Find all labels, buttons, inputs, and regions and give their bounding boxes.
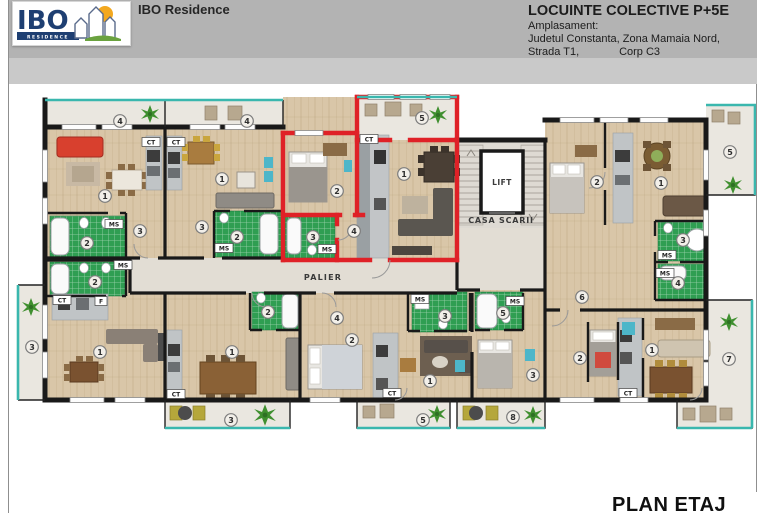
tv — [264, 157, 273, 168]
room-number-circle: 3 — [26, 341, 39, 354]
dining-table — [200, 355, 256, 401]
page: 445132132214321534623112423153217358CTCT… — [0, 0, 770, 513]
room-tag-ms: MS — [318, 245, 336, 254]
svg-text:F: F — [99, 298, 103, 305]
sideboard — [655, 318, 695, 330]
svg-text:2: 2 — [349, 336, 355, 345]
svg-text:CT: CT — [147, 139, 156, 146]
svg-text:2: 2 — [577, 354, 583, 363]
room-number-circle: 1 — [99, 190, 112, 203]
svg-text:1: 1 — [658, 179, 664, 188]
room-tag-ct: CT — [142, 138, 160, 147]
svg-text:CT: CT — [172, 391, 181, 398]
tv-console — [158, 333, 164, 361]
brand-text: IBO Residence — [138, 2, 230, 17]
svg-text:8: 8 — [510, 413, 516, 422]
sofa — [658, 340, 710, 357]
svg-text:1: 1 — [427, 377, 433, 386]
room-number-circle: 3 — [134, 225, 147, 238]
plan-text-label: LIFT — [492, 178, 512, 187]
room-number-circle: 3 — [527, 369, 540, 382]
header-subbar — [9, 58, 757, 84]
svg-text:3: 3 — [530, 371, 536, 380]
svg-text:MS: MS — [415, 296, 425, 303]
svg-text:4: 4 — [675, 279, 681, 288]
plan-text-label: PALIER — [304, 273, 342, 282]
svg-text:1: 1 — [97, 348, 103, 357]
svg-text:1: 1 — [102, 192, 108, 201]
room-number-circle: 3 — [225, 414, 238, 427]
room-number-circle: 4 — [114, 115, 127, 128]
svg-text:CT: CT — [172, 139, 181, 146]
svg-text:MS: MS — [660, 270, 670, 277]
dining-table — [650, 360, 692, 400]
tv-console — [392, 246, 432, 255]
sofa — [286, 338, 300, 390]
room-tag-ct: CT — [53, 296, 71, 305]
room-tag-ct: CT — [167, 138, 185, 147]
svg-text:3: 3 — [310, 233, 316, 242]
palier-floor — [130, 258, 457, 293]
svg-text:2: 2 — [265, 308, 271, 317]
svg-text:1: 1 — [229, 348, 235, 357]
room-number-circle: 6 — [576, 291, 589, 304]
room-number-circle: 2 — [574, 352, 587, 365]
armchair — [455, 360, 465, 372]
plan-text-label: CASA SCARII — [468, 216, 534, 225]
logo-main-text: IBO — [17, 6, 69, 36]
room-number-circle: 3 — [439, 310, 452, 323]
desk — [575, 145, 597, 157]
room-tag-ct: CT — [619, 389, 637, 398]
stair-landing-floor — [457, 225, 545, 290]
svg-text:MS: MS — [510, 298, 520, 305]
svg-text:4: 4 — [244, 117, 250, 126]
plan-type-label: PLAN ETAJ — [612, 494, 726, 513]
page-border-right — [756, 84, 757, 492]
plan-title: LOCUINTE COLECTIVE P+5E — [528, 3, 729, 19]
room-tag-ms: MS — [411, 295, 429, 304]
logo-card: IBO RESIDENCE — [12, 1, 131, 46]
sofa — [57, 137, 103, 157]
room-number-circle: 2 — [331, 185, 344, 198]
ibo-logo: IBO RESIDENCE — [13, 2, 128, 43]
svg-text:2: 2 — [234, 233, 240, 242]
bed — [308, 345, 362, 389]
svg-text:MS: MS — [662, 252, 672, 259]
room-number-circle: 5 — [416, 112, 429, 125]
room-number-circle: 3 — [196, 221, 209, 234]
room-number-circle: 5 — [417, 414, 430, 427]
logo-sub-text: RESIDENCE — [27, 35, 69, 41]
room-number-circle: 1 — [216, 173, 229, 186]
room-tag-ms: MS — [105, 220, 123, 229]
room-number-circle: 1 — [398, 168, 411, 181]
room-number-circle: 3 — [307, 231, 320, 244]
svg-text:2: 2 — [334, 187, 340, 196]
address-street: Strada T1, — [528, 46, 616, 59]
kitchen — [613, 133, 633, 223]
room-tag-ms: MS — [114, 261, 132, 270]
room-number-circle: 2 — [81, 237, 94, 250]
room-tag-ct: CT — [383, 389, 401, 398]
svg-text:7: 7 — [726, 355, 732, 364]
room-number-circle: 2 — [346, 334, 359, 347]
room-number-circle: 1 — [94, 346, 107, 359]
room-number-circle: 1 — [226, 346, 239, 359]
room-number-circle: 2 — [231, 231, 244, 244]
room-number-circle: 5 — [497, 307, 510, 320]
svg-text:MS: MS — [118, 262, 128, 269]
svg-text:5: 5 — [727, 148, 733, 157]
address-line1: Judetul Constanta, Zona Mamaia Nord, — [528, 33, 729, 46]
bed — [478, 340, 512, 388]
room-tag-ct: CT — [167, 390, 185, 399]
svg-text:3: 3 — [137, 227, 143, 236]
desk — [323, 143, 347, 156]
tv — [622, 322, 635, 335]
svg-text:3: 3 — [29, 343, 35, 352]
title-block: LOCUINTE COLECTIVE P+5E Amplasament: Jud… — [528, 3, 729, 59]
svg-text:CT: CT — [365, 136, 374, 143]
kitchen — [167, 330, 182, 396]
svg-text:3: 3 — [199, 223, 205, 232]
svg-text:3: 3 — [228, 416, 234, 425]
room-number-circle: 3 — [677, 234, 690, 247]
nightstand — [525, 349, 535, 361]
room-tag-ms: MS — [656, 269, 674, 278]
address-label: Amplasament: — [528, 20, 729, 33]
room-number-circle: 1 — [655, 177, 668, 190]
svg-text:4: 4 — [334, 314, 340, 323]
svg-text:3: 3 — [680, 236, 686, 245]
room-number-circle: 4 — [672, 277, 685, 290]
svg-text:CT: CT — [624, 390, 633, 397]
page-border-left — [8, 0, 9, 513]
svg-text:4: 4 — [351, 227, 357, 236]
svg-text:4: 4 — [117, 117, 123, 126]
room-tag-ms: MS — [215, 244, 233, 253]
svg-text:MS: MS — [322, 246, 332, 253]
tv — [344, 160, 352, 172]
svg-text:CT: CT — [58, 297, 67, 304]
room-number-circle: 4 — [331, 312, 344, 325]
bed — [550, 163, 584, 213]
rug — [237, 172, 255, 188]
svg-text:5: 5 — [500, 309, 506, 318]
room-number-circle: 4 — [348, 225, 361, 238]
kitchen — [357, 135, 389, 258]
room-tag-ms: MS — [506, 297, 524, 306]
bed — [289, 152, 327, 202]
svg-text:MS: MS — [109, 221, 119, 228]
room-tag-f: F — [95, 297, 107, 306]
room-number-circle: 5 — [724, 146, 737, 159]
svg-text:2: 2 — [84, 239, 90, 248]
address-corp: Corp C3 — [619, 46, 660, 58]
svg-text:5: 5 — [419, 114, 425, 123]
room-number-circle: 2 — [262, 306, 275, 319]
room-number-circle: 1 — [646, 344, 659, 357]
svg-text:2: 2 — [92, 278, 98, 287]
room-number-circle: 2 — [591, 176, 604, 189]
svg-text:MS: MS — [219, 245, 229, 252]
sofa — [216, 193, 274, 208]
bed — [590, 330, 616, 376]
table — [400, 358, 416, 372]
svg-text:CT: CT — [388, 390, 397, 397]
svg-text:5: 5 — [420, 416, 426, 425]
room-number-circle: 4 — [241, 115, 254, 128]
room-number-circle: 2 — [89, 276, 102, 289]
svg-text:3: 3 — [442, 312, 448, 321]
svg-text:1: 1 — [649, 346, 655, 355]
room-tag-ct: CT — [360, 135, 378, 144]
sofa — [663, 196, 706, 216]
svg-text:1: 1 — [401, 170, 407, 179]
room-tag-ms: MS — [658, 251, 676, 260]
svg-text:1: 1 — [219, 175, 225, 184]
svg-text:2: 2 — [594, 178, 600, 187]
svg-text:6: 6 — [579, 293, 585, 302]
room-number-circle: 8 — [507, 411, 520, 424]
room-number-circle: 7 — [723, 353, 736, 366]
round-dining-table — [643, 141, 671, 171]
bathtub — [477, 294, 497, 328]
room-number-circle: 1 — [424, 375, 437, 388]
